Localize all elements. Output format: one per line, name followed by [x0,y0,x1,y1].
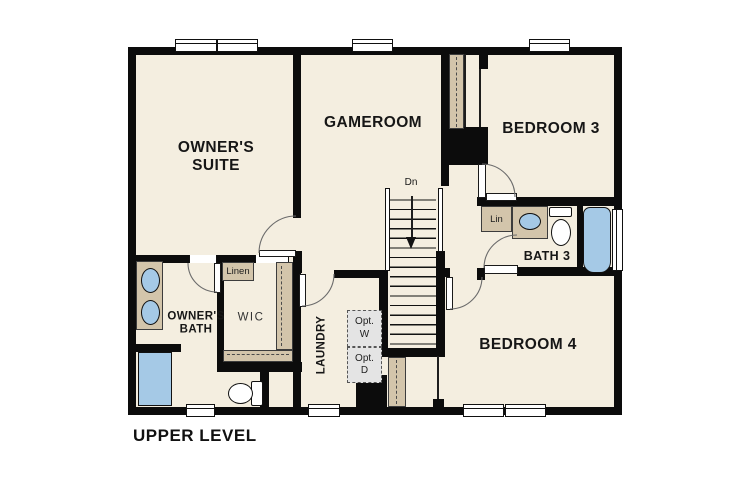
wall-suite-gameroom [293,54,301,218]
understair-dashed-line [396,360,397,404]
stairs-down-label: Dn [405,177,418,189]
wic-rod-right [281,266,282,346]
owners-bath-sink-1 [141,268,160,293]
room-label-bedroom4: BEDROOM 4 [479,336,576,354]
floor-plan: Linen Lin Opt. W Opt. D OWNER'S SUITE GA… [0,0,750,500]
linen-closet-label: Linen [226,266,249,277]
bath3-door-leaf [484,265,518,274]
room-label-wic: WIC [238,311,265,324]
linen-closet: Linen [222,262,254,281]
owners-bath-sink-2 [141,300,160,325]
wall-bath3-bottom-a [436,268,450,277]
opt-dryer-label: Opt. D [355,353,374,378]
opt-dryer-box: Opt. D [347,347,382,383]
stairs-arrow-head [406,237,416,249]
wall-stairs-right [436,251,445,357]
wall-shower-top [135,344,181,352]
stair-shaft-dashed-line [456,57,457,127]
wic-rod-bottom [227,354,289,355]
bedroom3-door-leaf [478,164,486,198]
window-owners-suite-2 [217,39,258,52]
room-label-owners-bath: OWNER'S BATH [167,311,224,338]
window-bath3-tub [612,209,623,271]
stairs-rail-right [438,188,443,252]
window-bedroom3 [529,39,570,52]
understair-storage [388,357,406,407]
room-label-bedroom3: BEDROOM 3 [502,120,599,138]
wall-bedroom3-left-rail [479,69,481,127]
bedroom3-door-threshold [486,193,517,201]
window-owners-suite-1 [175,39,217,52]
window-laundry-hall [308,404,340,417]
wall-bedroom3-left-upper [479,54,488,69]
wall-shaft-right-line [464,54,466,130]
owners-bath-door-leaf [214,263,221,293]
wic-shelf-right [276,262,293,350]
bedroom4-door-leaf [446,277,453,310]
bath3-tub [583,207,611,273]
lin-closet-label: Lin [490,214,503,225]
room-label-laundry: LAUNDRY [315,316,328,375]
room-label-bath3: BATH 3 [524,249,571,264]
bath3-toilet-bowl [551,219,571,246]
lin-closet: Lin [481,206,512,232]
window-bedroom4-2 [505,404,546,417]
bath3-sink [519,213,541,230]
owners-bath-shower [138,352,172,406]
wall-wic-bottom [217,362,302,372]
opt-washer-label: Opt. W [355,316,374,341]
wall-outer-left [128,47,136,415]
stairs-arrow-shaft [411,196,413,238]
stairs-treads [390,191,436,349]
wall-shaft-left [441,54,449,186]
owners-suite-door-leaf [259,250,296,257]
window-owners-bath [186,404,215,417]
laundry-door-leaf [299,274,306,307]
wic-shelf-bottom [223,350,293,362]
opt-washer-box: Opt. W [347,310,382,347]
owners-toilet-bowl [228,383,253,404]
wall-understair-line [437,356,439,401]
window-bedroom4-1 [463,404,504,417]
wall-stairwell-mass [441,127,488,165]
wall-understair-stub [433,399,444,407]
room-label-gameroom: GAMEROOM [324,114,422,132]
room-label-owners-suite: OWNER'S SUITE [178,139,254,175]
owners-bath-doorway [189,255,217,263]
plan-title: UPPER LEVEL [133,426,257,446]
window-gameroom [352,39,393,52]
bath3-toilet-tank [549,207,572,217]
